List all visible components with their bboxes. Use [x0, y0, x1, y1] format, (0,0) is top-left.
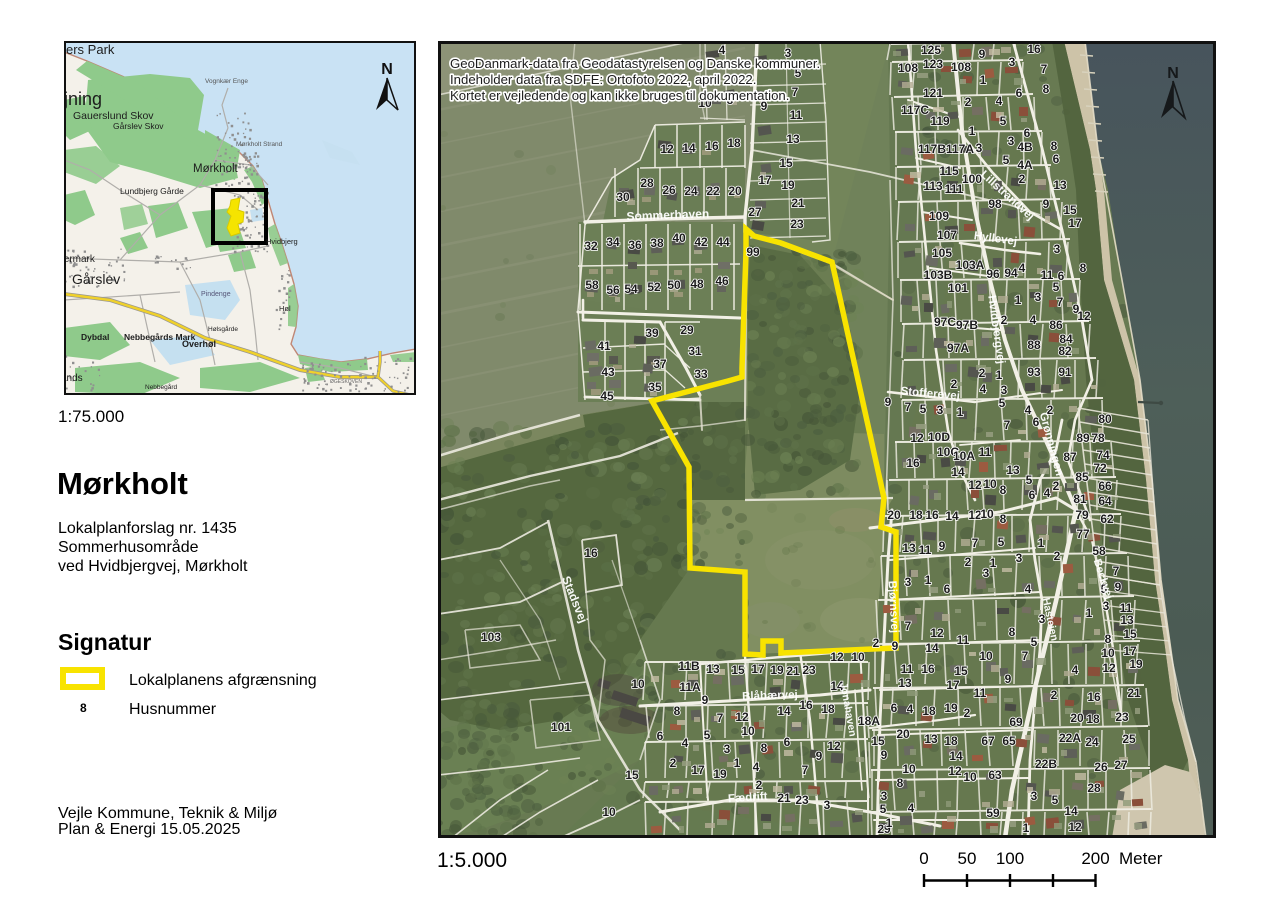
- svg-text:10A: 10A: [953, 449, 975, 463]
- svg-text:94: 94: [1004, 266, 1018, 280]
- svg-text:1: 1: [1038, 536, 1045, 550]
- svg-text:11: 11: [979, 445, 992, 459]
- svg-text:7: 7: [717, 711, 724, 725]
- svg-text:69: 69: [1009, 715, 1023, 729]
- svg-text:13: 13: [1120, 613, 1134, 627]
- svg-text:13: 13: [902, 541, 916, 555]
- svg-text:Høl: Høl: [279, 304, 291, 313]
- svg-text:50: 50: [958, 849, 977, 868]
- svg-text:65: 65: [1002, 734, 1016, 748]
- svg-text:89: 89: [1076, 431, 1090, 445]
- svg-text:14: 14: [951, 465, 965, 479]
- svg-text:103A: 103A: [956, 258, 985, 272]
- svg-text:3: 3: [1031, 789, 1038, 803]
- svg-text:58: 58: [1092, 544, 1106, 558]
- svg-text:16: 16: [925, 508, 939, 522]
- svg-text:8: 8: [674, 704, 681, 718]
- svg-text:10: 10: [963, 770, 977, 784]
- svg-text:14: 14: [925, 641, 939, 655]
- svg-text:26: 26: [1094, 760, 1108, 774]
- svg-text:33: 33: [694, 367, 708, 381]
- svg-text:7: 7: [1004, 418, 1011, 432]
- svg-text:2: 2: [964, 706, 971, 720]
- svg-text:18: 18: [821, 702, 835, 716]
- svg-text:7: 7: [972, 536, 979, 550]
- svg-text:14: 14: [949, 749, 963, 763]
- svg-text:11A: 11A: [679, 680, 701, 694]
- svg-text:97A: 97A: [947, 341, 969, 355]
- svg-text:10: 10: [983, 477, 997, 491]
- svg-text:3: 3: [1054, 242, 1061, 256]
- svg-text:107: 107: [937, 228, 957, 242]
- svg-text:8: 8: [1000, 512, 1007, 526]
- svg-text:19: 19: [1129, 657, 1143, 671]
- svg-text:1: 1: [925, 573, 932, 587]
- svg-text:2: 2: [1019, 172, 1026, 186]
- svg-text:30: 30: [616, 190, 630, 204]
- svg-text:77: 77: [1076, 527, 1090, 541]
- svg-text:5: 5: [880, 802, 887, 816]
- svg-text:115: 115: [939, 164, 959, 178]
- svg-text:3: 3: [824, 798, 831, 812]
- svg-text:4: 4: [1025, 582, 1032, 596]
- svg-text:2: 2: [1053, 479, 1060, 493]
- svg-text:10: 10: [980, 507, 994, 521]
- svg-text:Hølsgårde: Hølsgårde: [208, 325, 238, 333]
- svg-text:100: 100: [962, 172, 982, 186]
- svg-text:79: 79: [1075, 508, 1089, 522]
- svg-text:11: 11: [957, 633, 970, 647]
- svg-text:24: 24: [1085, 735, 1099, 749]
- svg-text:12: 12: [1077, 309, 1091, 323]
- svg-text:97B: 97B: [956, 318, 978, 332]
- svg-text:20: 20: [728, 184, 742, 198]
- svg-text:12: 12: [930, 626, 944, 640]
- svg-text:6: 6: [1029, 488, 1036, 502]
- svg-text:50: 50: [667, 278, 681, 292]
- svg-text:7: 7: [802, 763, 809, 777]
- svg-text:Vognkær Enge: Vognkær Enge: [205, 78, 248, 85]
- svg-text:3: 3: [1103, 599, 1110, 613]
- svg-text:13: 13: [924, 732, 938, 746]
- svg-text:Hvidbjerg: Hvidbjerg: [266, 237, 298, 246]
- svg-text:23: 23: [1115, 710, 1129, 724]
- svg-text:1: 1: [886, 816, 893, 830]
- svg-text:4: 4: [753, 760, 760, 774]
- svg-text:18: 18: [944, 734, 958, 748]
- svg-text:4: 4: [1072, 663, 1079, 677]
- svg-text:81: 81: [1073, 492, 1087, 506]
- svg-text:3: 3: [1001, 383, 1008, 397]
- svg-text:32: 32: [584, 239, 598, 253]
- svg-text:10: 10: [851, 650, 865, 664]
- svg-text:103: 103: [481, 630, 501, 644]
- svg-text:2: 2: [979, 366, 986, 380]
- svg-text:16: 16: [705, 139, 719, 153]
- svg-text:ØGESKOVEN: ØGESKOVEN: [330, 379, 362, 385]
- svg-text:111: 111: [945, 182, 964, 196]
- svg-text:29: 29: [680, 323, 694, 337]
- svg-text:16: 16: [799, 698, 813, 712]
- svg-text:2: 2: [670, 756, 677, 770]
- svg-text:93: 93: [1027, 365, 1041, 379]
- svg-text:21: 21: [1127, 686, 1141, 700]
- svg-text:97C: 97C: [934, 315, 956, 329]
- svg-text:117B: 117B: [918, 142, 946, 156]
- svg-text:16: 16: [1027, 44, 1041, 56]
- svg-text:10: 10: [741, 724, 755, 738]
- svg-text:16: 16: [906, 456, 920, 470]
- svg-text:termark: termark: [66, 254, 96, 265]
- svg-text:109: 109: [929, 209, 949, 223]
- svg-text:Kortet er vejledende og kan ik: Kortet er vejledende og kan ikke bruges …: [450, 88, 789, 103]
- svg-text:123: 123: [923, 57, 943, 71]
- svg-text:5: 5: [998, 535, 1005, 549]
- svg-text:2: 2: [756, 778, 763, 792]
- svg-text:125: 125: [921, 44, 941, 57]
- svg-text:37: 37: [653, 357, 667, 371]
- svg-text:8: 8: [761, 741, 768, 755]
- svg-text:86: 86: [1049, 318, 1063, 332]
- svg-text:14: 14: [945, 509, 959, 523]
- svg-text:11: 11: [919, 543, 932, 557]
- svg-text:96: 96: [986, 267, 1000, 281]
- svg-text:2: 2: [965, 95, 972, 109]
- svg-text:15: 15: [779, 156, 793, 170]
- svg-text:26: 26: [662, 183, 676, 197]
- svg-text:9: 9: [885, 395, 892, 409]
- svg-text:105: 105: [932, 246, 952, 260]
- svg-text:3: 3: [905, 575, 912, 589]
- svg-text:64: 64: [1098, 494, 1112, 508]
- svg-text:7: 7: [1113, 564, 1120, 578]
- svg-text:24: 24: [684, 184, 698, 198]
- svg-text:12: 12: [968, 478, 982, 492]
- svg-text:72: 72: [1093, 461, 1107, 475]
- svg-text:15: 15: [954, 664, 968, 678]
- svg-text:6: 6: [1016, 86, 1023, 100]
- svg-text:13: 13: [1006, 463, 1020, 477]
- svg-text:17: 17: [946, 678, 960, 692]
- svg-text:62: 62: [1100, 512, 1114, 526]
- svg-text:3: 3: [881, 789, 888, 803]
- svg-text:13: 13: [898, 676, 912, 690]
- svg-text:20: 20: [896, 727, 910, 741]
- svg-text:21: 21: [786, 664, 800, 678]
- svg-text:17: 17: [758, 173, 772, 187]
- svg-text:ands: ands: [66, 373, 83, 384]
- svg-text:10: 10: [631, 677, 645, 691]
- svg-text:1: 1: [969, 124, 976, 138]
- svg-text:8: 8: [1009, 625, 1016, 639]
- svg-text:Gårslev Skov: Gårslev Skov: [113, 121, 164, 131]
- svg-text:GeoDanmark-data fra Geodatasty: GeoDanmark-data fra Geodatastyrelsen og …: [450, 56, 820, 71]
- svg-text:0: 0: [919, 849, 928, 868]
- svg-text:1: 1: [980, 73, 987, 87]
- svg-text:108: 108: [951, 60, 971, 74]
- svg-text:78: 78: [1091, 431, 1105, 445]
- svg-text:5: 5: [999, 396, 1006, 410]
- svg-text:7: 7: [905, 400, 912, 414]
- svg-text:12: 12: [1068, 820, 1082, 834]
- svg-text:11B: 11B: [678, 659, 700, 673]
- svg-text:9: 9: [702, 693, 709, 707]
- svg-text:5: 5: [1000, 114, 1007, 128]
- svg-text:1: 1: [734, 756, 741, 770]
- svg-text:1: 1: [1015, 293, 1022, 307]
- svg-text:5: 5: [704, 728, 711, 742]
- svg-text:101: 101: [551, 720, 571, 734]
- svg-text:15: 15: [731, 663, 745, 677]
- svg-text:15: 15: [1063, 203, 1077, 217]
- svg-text:4: 4: [907, 702, 914, 716]
- svg-text:38: 38: [650, 236, 664, 250]
- svg-text:99: 99: [746, 245, 760, 259]
- svg-text:23: 23: [795, 793, 809, 807]
- svg-text:3: 3: [1008, 134, 1015, 148]
- svg-text:34: 34: [606, 235, 620, 249]
- svg-text:Pindenge: Pindenge: [201, 291, 231, 298]
- svg-text:27: 27: [1114, 758, 1128, 772]
- svg-text:67: 67: [981, 734, 995, 748]
- svg-text:121: 121: [923, 86, 943, 100]
- svg-text:Overhøl: Overhøl: [182, 339, 216, 349]
- svg-text:Mørkholt: Mørkholt: [193, 163, 239, 175]
- svg-text:Gårslev: Gårslev: [72, 271, 120, 287]
- svg-text:35: 35: [648, 380, 662, 394]
- svg-text:14: 14: [682, 141, 696, 155]
- svg-text:4A: 4A: [1017, 158, 1033, 172]
- svg-text:Mørkholt Strand: Mørkholt Strand: [236, 141, 283, 148]
- svg-text:10: 10: [602, 805, 616, 819]
- svg-text:9: 9: [1115, 580, 1122, 594]
- svg-text:Indeholder data fra SDFE: Orto: Indeholder data fra SDFE: Ortofoto 2022,…: [450, 72, 756, 87]
- svg-text:16: 16: [1087, 690, 1101, 704]
- svg-text:7: 7: [1022, 649, 1029, 663]
- svg-text:28: 28: [1087, 781, 1101, 795]
- svg-text:6: 6: [657, 729, 664, 743]
- svg-text:6: 6: [944, 582, 951, 596]
- svg-text:2: 2: [965, 555, 972, 569]
- svg-text:1: 1: [957, 405, 964, 419]
- svg-text:52: 52: [647, 280, 661, 294]
- svg-text:2: 2: [1054, 549, 1061, 563]
- svg-text:Sommerhaven: Sommerhaven: [626, 207, 709, 224]
- svg-text:82: 82: [1058, 344, 1072, 358]
- svg-text:8: 8: [1105, 632, 1112, 646]
- svg-text:2: 2: [873, 636, 880, 650]
- svg-text:4: 4: [1030, 313, 1037, 327]
- svg-text:15: 15: [871, 734, 885, 748]
- svg-text:113: 113: [923, 179, 943, 193]
- svg-text:54: 54: [624, 282, 638, 296]
- svg-text:11: 11: [901, 662, 914, 676]
- svg-text:9: 9: [939, 539, 946, 553]
- svg-text:1: 1: [1086, 606, 1093, 620]
- svg-text:119: 119: [930, 114, 950, 128]
- svg-text:3: 3: [1016, 551, 1023, 565]
- svg-text:6: 6: [891, 701, 898, 715]
- svg-text:13: 13: [1053, 178, 1067, 192]
- svg-text:66: 66: [1098, 479, 1112, 493]
- svg-text:85: 85: [1075, 470, 1089, 484]
- svg-text:44: 44: [716, 235, 730, 249]
- svg-text:9: 9: [979, 47, 986, 61]
- svg-text:8: 8: [1043, 82, 1050, 96]
- svg-text:17: 17: [1123, 644, 1137, 658]
- svg-text:8: 8: [1080, 261, 1087, 275]
- svg-text:17: 17: [751, 662, 765, 676]
- svg-text:12: 12: [660, 142, 674, 156]
- svg-text:7: 7: [1057, 295, 1064, 309]
- svg-text:15: 15: [1123, 627, 1137, 641]
- svg-text:3: 3: [724, 742, 731, 756]
- svg-text:4: 4: [682, 736, 689, 750]
- svg-text:6: 6: [1053, 152, 1060, 166]
- svg-text:N: N: [1167, 65, 1179, 82]
- svg-text:7: 7: [905, 619, 912, 633]
- svg-text:18: 18: [909, 508, 923, 522]
- svg-text:7: 7: [1041, 62, 1048, 76]
- svg-text:16: 16: [921, 662, 935, 676]
- svg-text:28: 28: [640, 176, 654, 190]
- svg-text:19: 19: [944, 701, 958, 715]
- svg-text:14: 14: [777, 704, 791, 718]
- svg-text:2: 2: [1051, 688, 1058, 702]
- svg-text:15: 15: [625, 768, 639, 782]
- svg-text:6: 6: [784, 735, 791, 749]
- svg-text:5: 5: [1003, 153, 1010, 167]
- svg-text:117A: 117A: [946, 142, 974, 156]
- svg-text:ers Park: ers Park: [66, 43, 115, 57]
- svg-text:10: 10: [1101, 646, 1115, 660]
- svg-text:5: 5: [920, 402, 927, 416]
- svg-text:36: 36: [628, 238, 642, 252]
- svg-text:80: 80: [1098, 412, 1112, 426]
- svg-text:7: 7: [792, 85, 799, 99]
- svg-text:Lundbjerg Gårde: Lundbjerg Gårde: [120, 186, 184, 196]
- svg-text:91: 91: [1058, 365, 1072, 379]
- svg-text:3: 3: [1009, 55, 1016, 69]
- svg-text:4: 4: [980, 382, 987, 396]
- svg-text:16: 16: [584, 546, 598, 560]
- svg-text:5: 5: [1026, 473, 1033, 487]
- svg-text:100: 100: [996, 849, 1024, 868]
- svg-text:Nebbegård: Nebbegård: [145, 383, 178, 391]
- svg-text:98: 98: [988, 197, 1002, 211]
- svg-text:1: 1: [1023, 821, 1030, 835]
- svg-text:Meter: Meter: [1119, 849, 1163, 868]
- svg-text:1: 1: [996, 368, 1003, 382]
- svg-text:23: 23: [790, 217, 804, 231]
- svg-text:56: 56: [606, 283, 620, 297]
- svg-text:21: 21: [791, 196, 805, 210]
- svg-text:18: 18: [727, 136, 741, 150]
- svg-text:N: N: [381, 61, 393, 78]
- svg-text:74: 74: [1096, 448, 1110, 462]
- svg-text:25: 25: [1122, 732, 1136, 746]
- svg-text:8: 8: [1000, 483, 1007, 497]
- svg-text:1: 1: [990, 556, 997, 570]
- svg-text:4: 4: [908, 801, 915, 815]
- svg-text:4: 4: [1025, 403, 1032, 417]
- svg-text:21: 21: [777, 791, 791, 805]
- svg-text:22: 22: [706, 184, 720, 198]
- svg-text:41: 41: [597, 339, 611, 353]
- svg-text:58: 58: [585, 278, 599, 292]
- svg-text:19: 19: [781, 178, 795, 192]
- svg-text:jning: jning: [66, 89, 102, 109]
- svg-text:3: 3: [983, 566, 990, 580]
- svg-text:31: 31: [688, 344, 702, 358]
- svg-text:3: 3: [937, 403, 944, 417]
- svg-text:10: 10: [979, 649, 993, 663]
- svg-text:45: 45: [600, 389, 614, 403]
- svg-text:4: 4: [1044, 486, 1051, 500]
- svg-text:12: 12: [827, 739, 841, 753]
- svg-text:5: 5: [1052, 793, 1059, 807]
- svg-text:18A: 18A: [858, 714, 880, 728]
- svg-text:9: 9: [1005, 672, 1012, 686]
- svg-text:19: 19: [713, 767, 727, 781]
- svg-text:12: 12: [1102, 661, 1116, 675]
- svg-text:18: 18: [922, 704, 936, 718]
- svg-text:20: 20: [887, 508, 901, 522]
- svg-text:8: 8: [897, 776, 904, 790]
- svg-text:12: 12: [830, 650, 844, 664]
- svg-text:9: 9: [892, 639, 899, 653]
- svg-text:4B: 4B: [1017, 140, 1033, 154]
- svg-text:13: 13: [706, 662, 720, 676]
- svg-text:4: 4: [1019, 261, 1026, 275]
- svg-text:23: 23: [802, 663, 816, 677]
- svg-text:40: 40: [672, 231, 686, 245]
- svg-text:3: 3: [976, 141, 983, 155]
- svg-text:200: 200: [1081, 849, 1109, 868]
- svg-text:59: 59: [986, 806, 1000, 820]
- svg-text:11: 11: [790, 108, 803, 122]
- svg-text:17: 17: [1068, 216, 1082, 230]
- svg-text:22B: 22B: [1035, 757, 1057, 771]
- svg-text:88: 88: [1027, 338, 1041, 352]
- svg-text:14: 14: [1064, 804, 1078, 818]
- svg-text:42: 42: [694, 235, 708, 249]
- svg-text:13: 13: [786, 132, 800, 146]
- svg-text:87: 87: [1063, 450, 1077, 464]
- svg-text:103B: 103B: [924, 268, 953, 282]
- svg-text:4: 4: [996, 94, 1003, 108]
- svg-text:12: 12: [910, 431, 924, 445]
- svg-text:5: 5: [1053, 280, 1060, 294]
- svg-text:9: 9: [1043, 197, 1050, 211]
- svg-text:48: 48: [690, 277, 704, 291]
- svg-text:12: 12: [735, 710, 749, 724]
- svg-text:18: 18: [1086, 712, 1100, 726]
- svg-text:9: 9: [881, 748, 888, 762]
- svg-text:22A: 22A: [1059, 731, 1081, 745]
- svg-text:Blåbærvej: Blåbærvej: [742, 689, 798, 703]
- svg-text:8: 8: [1051, 139, 1058, 153]
- svg-text:117C: 117C: [901, 103, 929, 117]
- svg-text:17: 17: [691, 763, 705, 777]
- svg-text:10: 10: [902, 762, 916, 776]
- svg-text:12: 12: [948, 764, 962, 778]
- svg-text:19: 19: [770, 663, 784, 677]
- svg-text:9: 9: [816, 749, 823, 763]
- svg-text:10D: 10D: [928, 430, 950, 444]
- svg-text:43: 43: [601, 365, 615, 379]
- svg-text:27: 27: [748, 205, 762, 219]
